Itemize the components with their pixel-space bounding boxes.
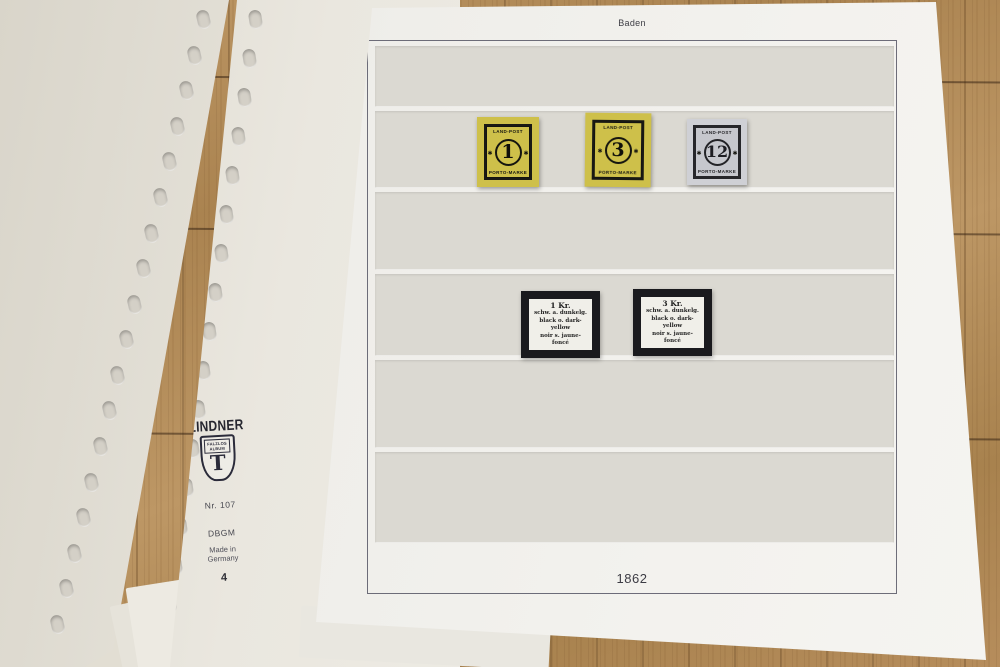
- punch-hole: [248, 9, 264, 30]
- stamp-ink-panel: LAND-POST 1 PORTO-MARKE: [484, 124, 532, 180]
- punch-hole: [195, 9, 212, 30]
- punch-hole: [225, 165, 241, 186]
- label-line: foncé: [664, 338, 681, 345]
- stamp-face: LAND-POST 1 PORTO-MARKE: [486, 126, 530, 178]
- label-line: black o. dark-: [539, 318, 581, 325]
- mount-label-1kr: 1 Kr. schw. a. dunkelg. black o. dark- y…: [521, 291, 600, 358]
- stamp-bottom-text: PORTO-MARKE: [489, 170, 527, 175]
- punch-hole: [213, 243, 229, 264]
- punch-hole: [152, 187, 169, 208]
- value-circle: 12: [704, 139, 731, 166]
- punch-hole: [101, 400, 118, 421]
- value-circle: 3: [604, 136, 631, 163]
- stamp-bottom-text: PORTO-MARKE: [698, 169, 736, 174]
- punch-hole: [161, 151, 178, 172]
- punch-hole: [58, 578, 75, 599]
- lindner-shield-icon: FALZLOS ALBUM T: [199, 434, 236, 482]
- punch-hole: [126, 293, 143, 314]
- label-line: noir s. jaune-: [652, 331, 693, 338]
- punch-hole: [135, 258, 152, 279]
- page-title: Baden: [367, 18, 897, 28]
- shield-letter: T: [210, 452, 227, 474]
- stamp-bottom-text: PORTO-MARKE: [599, 170, 637, 175]
- punch-hole: [49, 614, 66, 635]
- punch-hole: [178, 80, 195, 101]
- punch-hole: [92, 436, 109, 457]
- stamp-1-kreuzer: LAND-POST 1 PORTO-MARKE: [477, 117, 539, 187]
- stamp-top-text: LAND-POST: [702, 130, 732, 135]
- mount-label-3kr: 3 Kr. schw. a. dunkelg. black o. dark- y…: [633, 289, 712, 356]
- stamp-top-text: LAND-POST: [493, 129, 523, 134]
- punch-hole: [242, 48, 258, 69]
- punch-hole: [143, 222, 160, 243]
- label-line: noir s. jaune-: [540, 333, 581, 340]
- punch-hole: [230, 126, 246, 147]
- stamp-ink-panel: LAND-POST 12 PORTO-MARKE: [693, 125, 741, 179]
- punch-hole: [83, 471, 100, 492]
- stamp-value: 12: [706, 144, 728, 160]
- punch-hole: [109, 365, 126, 386]
- label-line: yellow: [551, 325, 570, 332]
- punch-hole: [169, 116, 186, 137]
- label-line: yellow: [663, 323, 682, 330]
- punch-hole: [236, 87, 252, 108]
- stamp-ink-panel: LAND-POST 3 PORTO-MARKE: [592, 120, 645, 181]
- page-number: 4: [221, 572, 228, 584]
- punch-hole: [219, 204, 235, 225]
- stamp-value: 1: [501, 143, 514, 162]
- mount-label-text: 1 Kr. schw. a. dunkelg. black o. dark- y…: [529, 299, 592, 350]
- stamp-face: LAND-POST 12 PORTO-MARKE: [695, 127, 739, 177]
- punch-hole: [66, 543, 83, 564]
- label-line: schw. a. dunkelg.: [646, 308, 699, 315]
- stamp-12-kreuzer: LAND-POST 12 PORTO-MARKE: [687, 119, 747, 185]
- label-line: 3 Kr.: [662, 299, 682, 308]
- punch-hole: [207, 282, 223, 303]
- made-in-line2: Germany: [207, 553, 238, 564]
- year-label: 1862: [367, 571, 897, 586]
- punch-hole: [186, 44, 203, 65]
- stamp-top-text: LAND-POST: [603, 125, 633, 130]
- item-number: Nr. 107: [205, 499, 236, 511]
- mount-label-text: 3 Kr. schw. a. dunkelg. black o. dark- y…: [641, 297, 704, 348]
- stamp-3-kreuzer: LAND-POST 3 PORTO-MARKE: [585, 113, 652, 188]
- label-line: 1 Kr.: [550, 301, 570, 310]
- dbgm-mark: DBGM: [208, 527, 236, 538]
- punch-hole: [118, 329, 135, 350]
- punch-hole: [75, 507, 92, 528]
- stamp-value: 3: [611, 140, 624, 159]
- value-circle: 1: [495, 139, 522, 166]
- photo-scene: LINDNER FALZLOS ALBUM T Nr. 107 DBGM Mad…: [0, 0, 1000, 667]
- label-line: foncé: [552, 340, 569, 347]
- label-line: schw. a. dunkelg.: [534, 310, 587, 317]
- label-line: black o. dark-: [651, 316, 693, 323]
- stamp-face: LAND-POST 3 PORTO-MARKE: [594, 122, 643, 178]
